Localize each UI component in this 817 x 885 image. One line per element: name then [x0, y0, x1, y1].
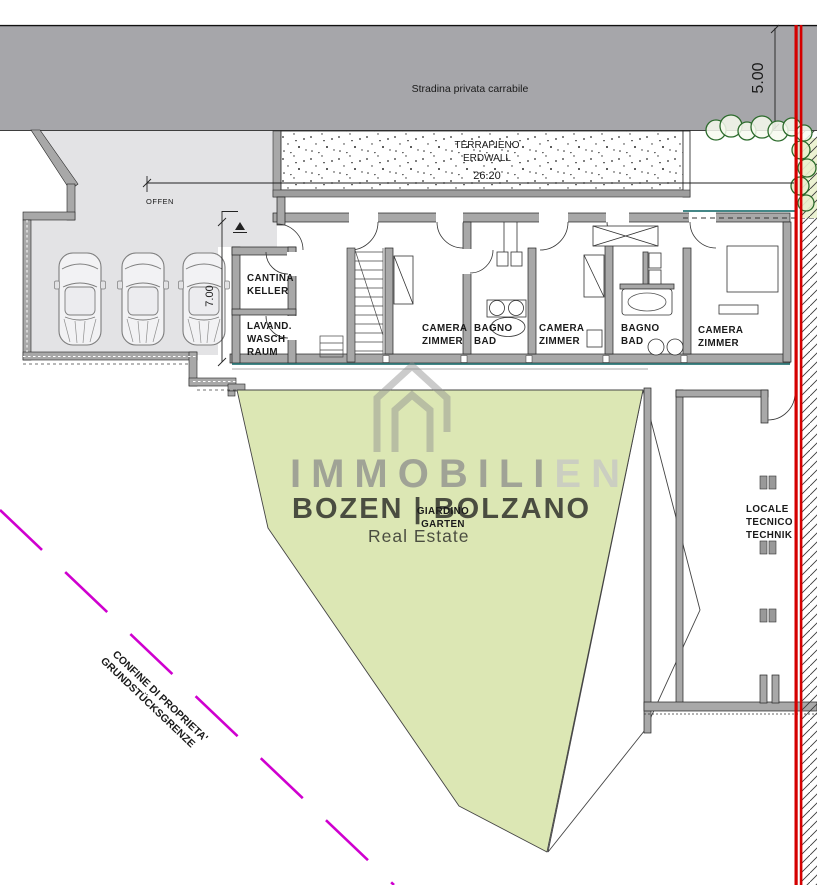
floor-plan: Stradina privata carrabile 5.00 TERRAPIE…: [0, 0, 817, 885]
room-label-camera1: CAMERA ZIMMER: [422, 323, 467, 347]
svg-text:BAD: BAD: [621, 336, 643, 347]
svg-text:TECNICO: TECNICO: [746, 517, 793, 528]
svg-text:ZIMMER: ZIMMER: [422, 336, 463, 347]
hatch-strip: [802, 131, 817, 885]
staircase: [320, 248, 383, 362]
room-label-camera2: CAMERA ZIMMER: [539, 323, 584, 347]
vent-marks: [760, 476, 776, 622]
svg-text:CANTINA: CANTINA: [247, 273, 294, 284]
room-label-cantina: CANTINA KELLER: [247, 273, 294, 297]
bagno1-fixtures: [487, 222, 526, 337]
property-boundary-label: CONFINE DI PROPRIETA' GRUNDSTÜCKSGRENZE: [98, 646, 210, 754]
svg-text:TECHNIK: TECHNIK: [746, 530, 792, 541]
svg-text:CAMERA: CAMERA: [698, 325, 743, 336]
road-label: Stradina privata carrabile: [412, 83, 529, 95]
terrapieno-area: TERRAPIENO ERDWALL: [273, 131, 690, 197]
svg-text:BAD: BAD: [474, 336, 496, 347]
room-label-locale-tecnico: LOCALE TECNICO TECHNIK: [746, 504, 793, 541]
svg-text:WASCH: WASCH: [247, 334, 285, 345]
car-2: [118, 253, 169, 345]
dimension-garage-depth-value: 7.00: [204, 285, 216, 306]
svg-text:GIARDINO: GIARDINO: [417, 506, 469, 517]
camera1-wardrobe: [394, 256, 413, 304]
svg-text:BAGNO: BAGNO: [474, 323, 512, 334]
svg-text:ZIMMER: ZIMMER: [539, 336, 580, 347]
svg-text:LAVAND.: LAVAND.: [247, 321, 292, 332]
svg-text:LOCALE: LOCALE: [746, 504, 789, 515]
svg-text:GRUNDSTÜCKSGRENZE: GRUNDSTÜCKSGRENZE: [98, 654, 198, 750]
camera3-fixtures: [719, 246, 778, 314]
svg-text:GARTEN: GARTEN: [421, 519, 465, 530]
svg-text:BAGNO: BAGNO: [621, 323, 659, 334]
room-label-lavanderia: LAVAND. WASCH RAUM: [247, 321, 292, 358]
svg-text:RAUM: RAUM: [247, 347, 278, 358]
dimension-terrapieno-value: 26.20: [473, 170, 501, 182]
svg-text:CAMERA: CAMERA: [422, 323, 467, 334]
watermark-brand: IMMOBILIEN: [290, 452, 630, 496]
room-label-camera3: CAMERA ZIMMER: [698, 325, 743, 349]
terrapieno-label-line1: TERRAPIENO: [454, 140, 519, 151]
dimension-road-width-value: 5.00: [750, 62, 767, 93]
svg-text:CAMERA: CAMERA: [539, 323, 584, 334]
private-road: Stradina privata carrabile: [0, 26, 817, 131]
svg-text:ZIMMER: ZIMMER: [698, 338, 739, 349]
technical-room-door-arc: [768, 393, 795, 420]
terrapieno-label-line2: ERDWALL: [463, 153, 511, 164]
car-1: [55, 253, 106, 345]
offen-label: OFFEN: [146, 197, 174, 206]
svg-text:KELLER: KELLER: [247, 286, 289, 297]
trees: [706, 115, 816, 211]
road-surface: [0, 26, 817, 130]
